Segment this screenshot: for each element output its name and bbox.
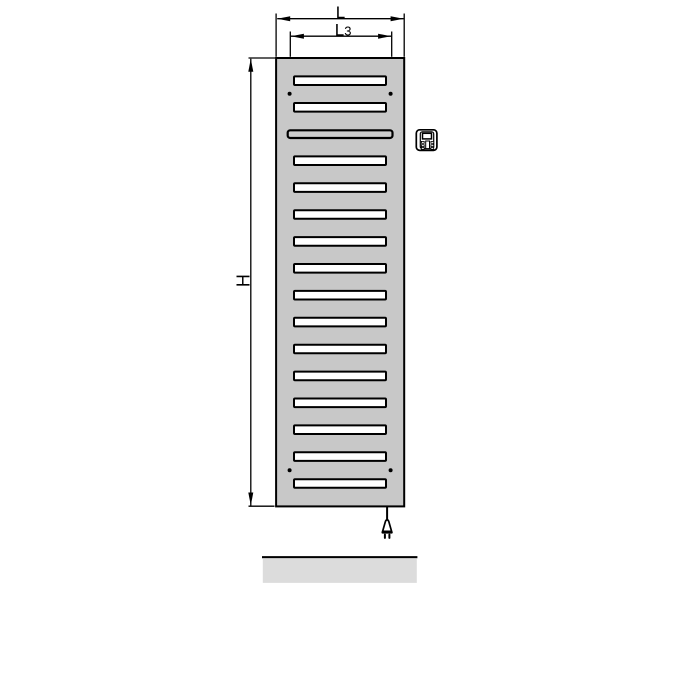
svg-text:H: H	[234, 274, 254, 287]
svg-text:L3: L3	[335, 21, 352, 40]
svg-text:L: L	[336, 3, 345, 22]
